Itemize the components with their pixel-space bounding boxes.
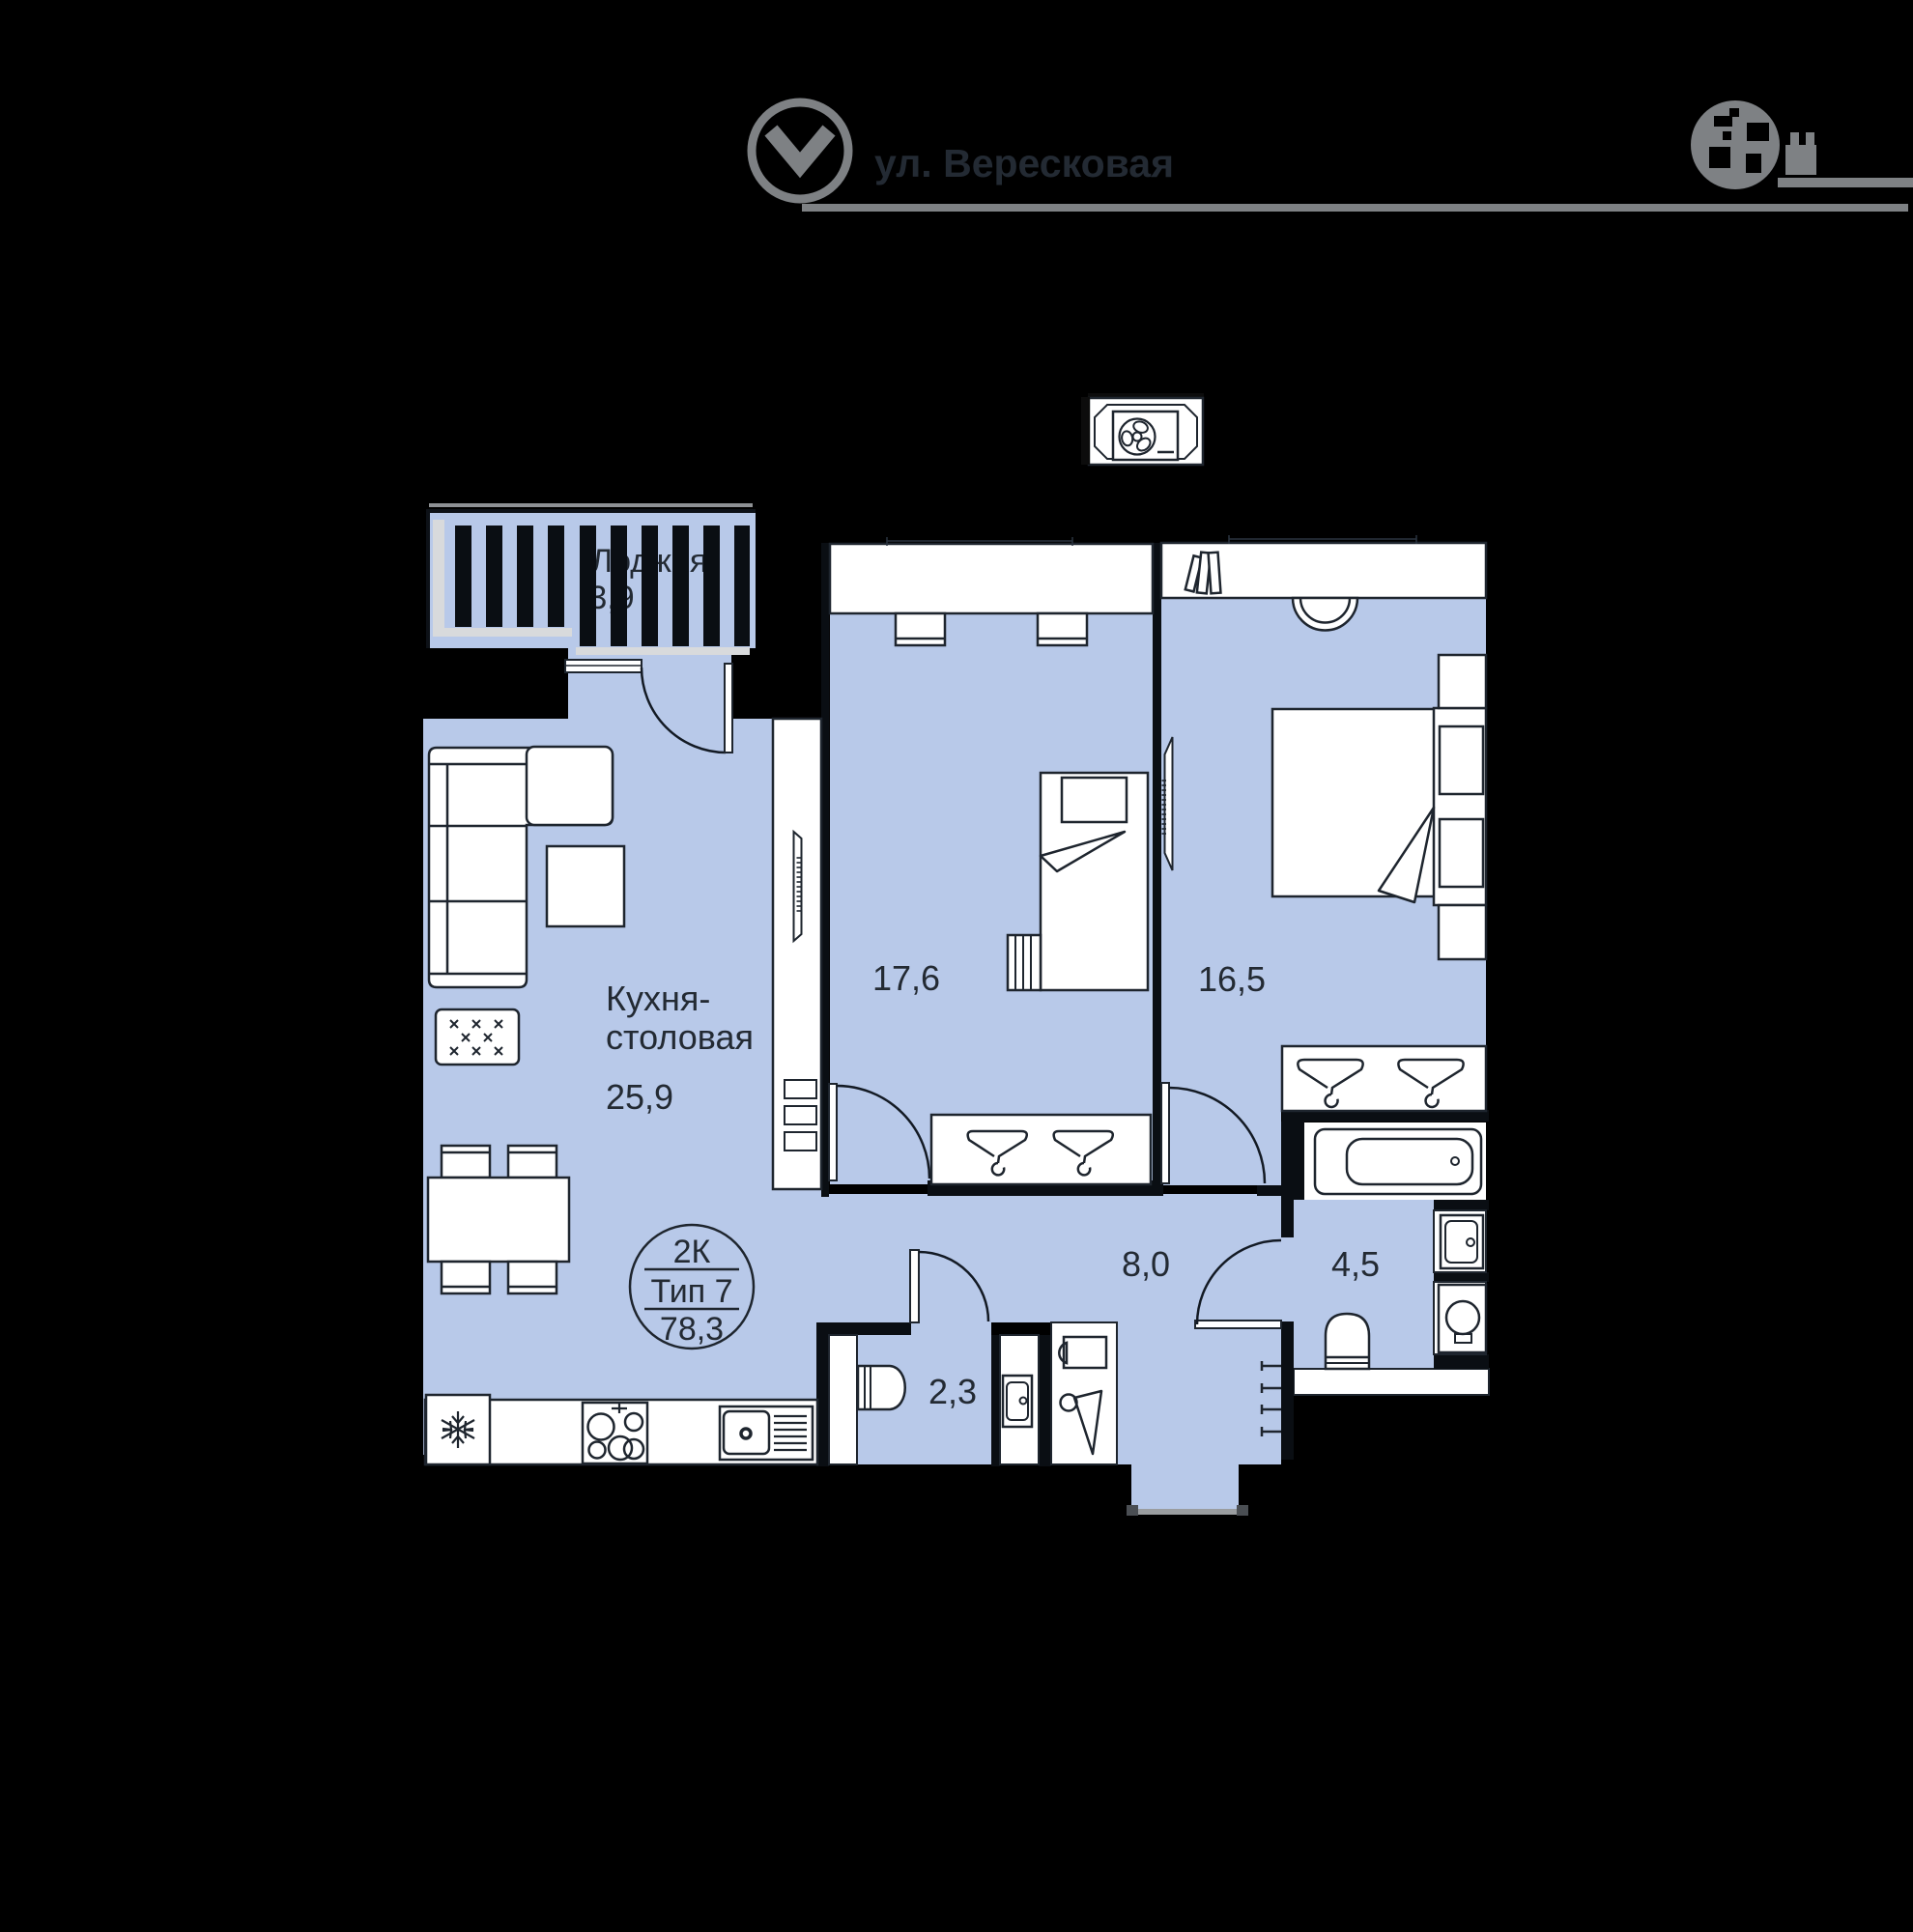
svg-text:16,5: 16,5 [1198, 959, 1266, 999]
svg-text:ул. Вересковая: ул. Вересковая [874, 141, 1174, 185]
svg-text:Тип 7: Тип 7 [650, 1273, 732, 1310]
svg-text:25,9: 25,9 [606, 1077, 673, 1117]
svg-text:Кухня-: Кухня- [606, 979, 710, 1018]
svg-text:4,5: 4,5 [1331, 1244, 1380, 1284]
svg-text:78,3: 78,3 [660, 1311, 724, 1348]
svg-text:17,6: 17,6 [872, 958, 940, 998]
svg-text:2К: 2К [673, 1234, 711, 1270]
svg-text:8,0: 8,0 [1122, 1244, 1170, 1284]
svg-text:столовая: столовая [606, 1017, 754, 1057]
svg-text:2,3: 2,3 [928, 1372, 977, 1411]
